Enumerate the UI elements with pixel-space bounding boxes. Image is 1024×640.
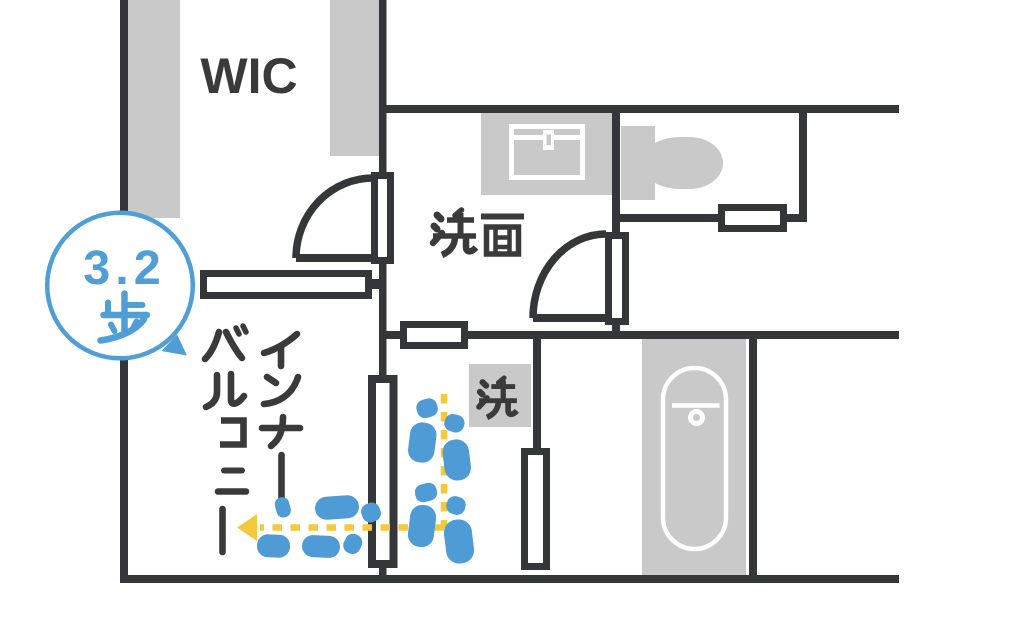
- svg-text:3.2: 3.2: [83, 241, 165, 295]
- svg-text:WIC: WIC: [200, 48, 297, 104]
